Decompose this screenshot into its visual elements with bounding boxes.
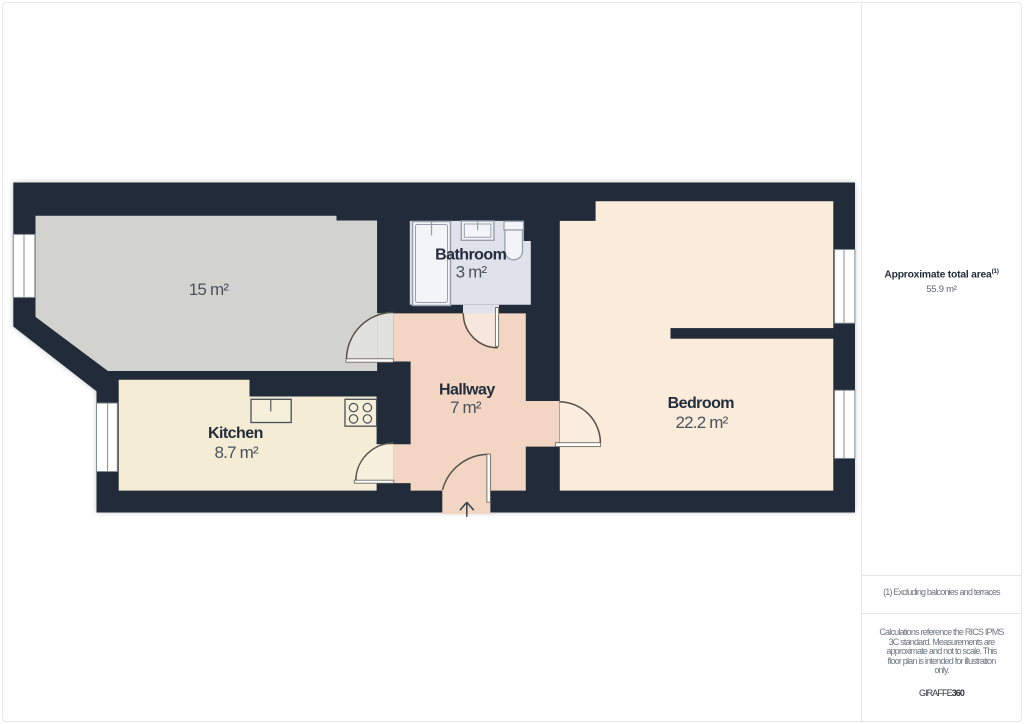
svg-text:15 m²: 15 m² [189, 280, 230, 299]
svg-text:Bedroom: Bedroom [668, 395, 735, 412]
svg-text:7 m²: 7 m² [450, 398, 482, 417]
svg-text:Bathroom: Bathroom [435, 246, 506, 263]
svg-text:22.2 m²: 22.2 m² [675, 413, 728, 432]
svg-text:8.7 m²: 8.7 m² [215, 443, 260, 462]
svg-text:Hallway: Hallway [439, 381, 495, 398]
svg-text:Kitchen: Kitchen [208, 425, 263, 442]
svg-text:3 m²: 3 m² [456, 263, 488, 282]
